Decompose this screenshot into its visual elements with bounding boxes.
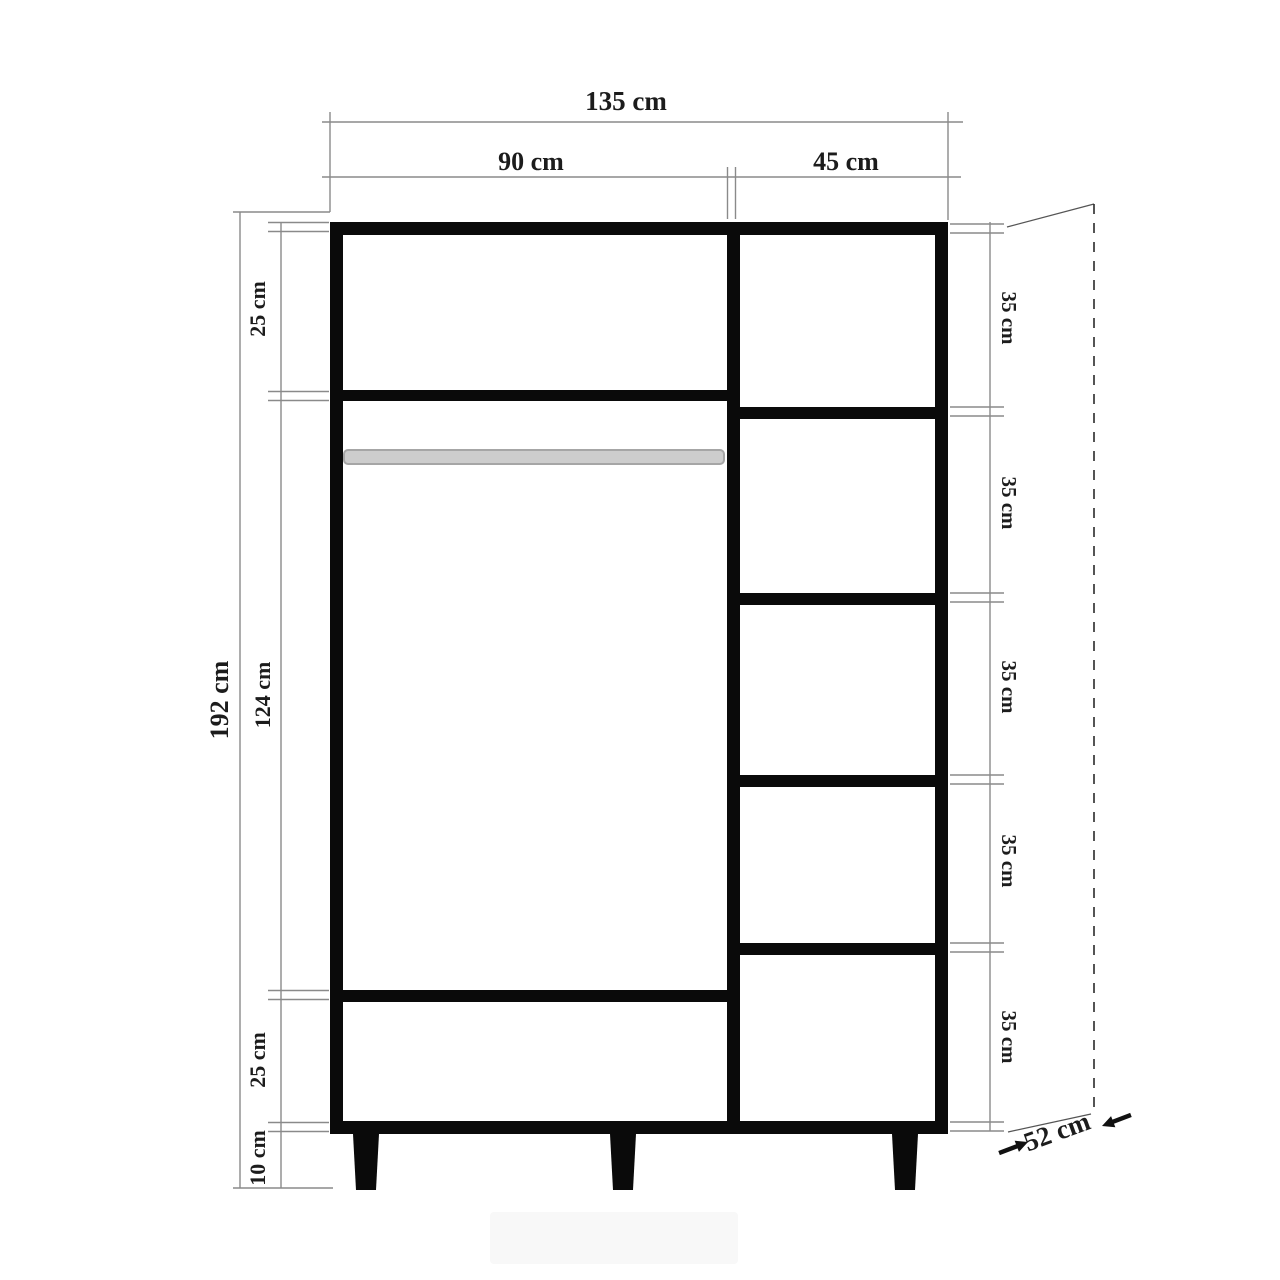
dim-label-shelf-3: 35 cm [997, 660, 1021, 714]
cabinet-top-panel [330, 222, 948, 235]
dim-label-shelf-1: 35 cm [997, 291, 1021, 345]
top-dimension-lines: 135 cm 90 cm 45 cm [322, 86, 963, 220]
right-shelf-1 [740, 407, 935, 419]
cabinet-right-panel [935, 222, 948, 1134]
dim-label-left-width: 90 cm [498, 147, 564, 176]
leg-center [610, 1134, 636, 1190]
left-dimension-lines: 192 cm 25 cm 124 cm 25 cm 10 cm [205, 212, 333, 1188]
right-dimension-lines: 35 cm 35 cm 35 cm 35 cm 35 cm [950, 222, 1021, 1131]
left-top-shelf [343, 390, 727, 401]
dim-label-bottom-section: 25 cm [245, 1032, 270, 1088]
faded-watermark [490, 1212, 738, 1264]
depth-projection-top-edge [1007, 204, 1094, 227]
dim-label-shelf-2: 35 cm [997, 476, 1021, 530]
wardrobe-body [330, 222, 948, 1190]
hanging-rod [344, 450, 724, 464]
dim-label-total-width: 135 cm [585, 86, 667, 116]
cabinet-bottom-panel [330, 1121, 948, 1134]
right-shelf-2 [740, 593, 935, 605]
right-shelf-4 [740, 943, 935, 955]
dim-label-right-width: 45 cm [813, 147, 879, 176]
diagram-canvas: 135 cm 90 cm 45 cm 192 cm 25 cm 124 cm 2… [0, 0, 1280, 1280]
dim-label-middle-section: 124 cm [250, 662, 275, 729]
dim-label-leg-height: 10 cm [245, 1130, 270, 1186]
dim-label-total-height: 192 cm [205, 660, 234, 739]
dim-label-shelf-5: 35 cm [997, 1010, 1021, 1064]
left-bottom-shelf [343, 990, 727, 1002]
depth-arrow-right [1100, 1109, 1133, 1131]
right-shelf-3 [740, 775, 935, 787]
cabinet-center-divider [727, 222, 740, 1134]
leg-right [892, 1134, 918, 1190]
leg-left [353, 1134, 379, 1190]
dim-label-depth: 52 cm [1020, 1106, 1095, 1158]
dim-label-shelf-4: 35 cm [997, 834, 1021, 888]
cabinet-left-panel [330, 222, 343, 1134]
wardrobe-dimension-diagram: 135 cm 90 cm 45 cm 192 cm 25 cm 124 cm 2… [0, 0, 1280, 1280]
dim-label-top-section: 25 cm [245, 281, 270, 337]
